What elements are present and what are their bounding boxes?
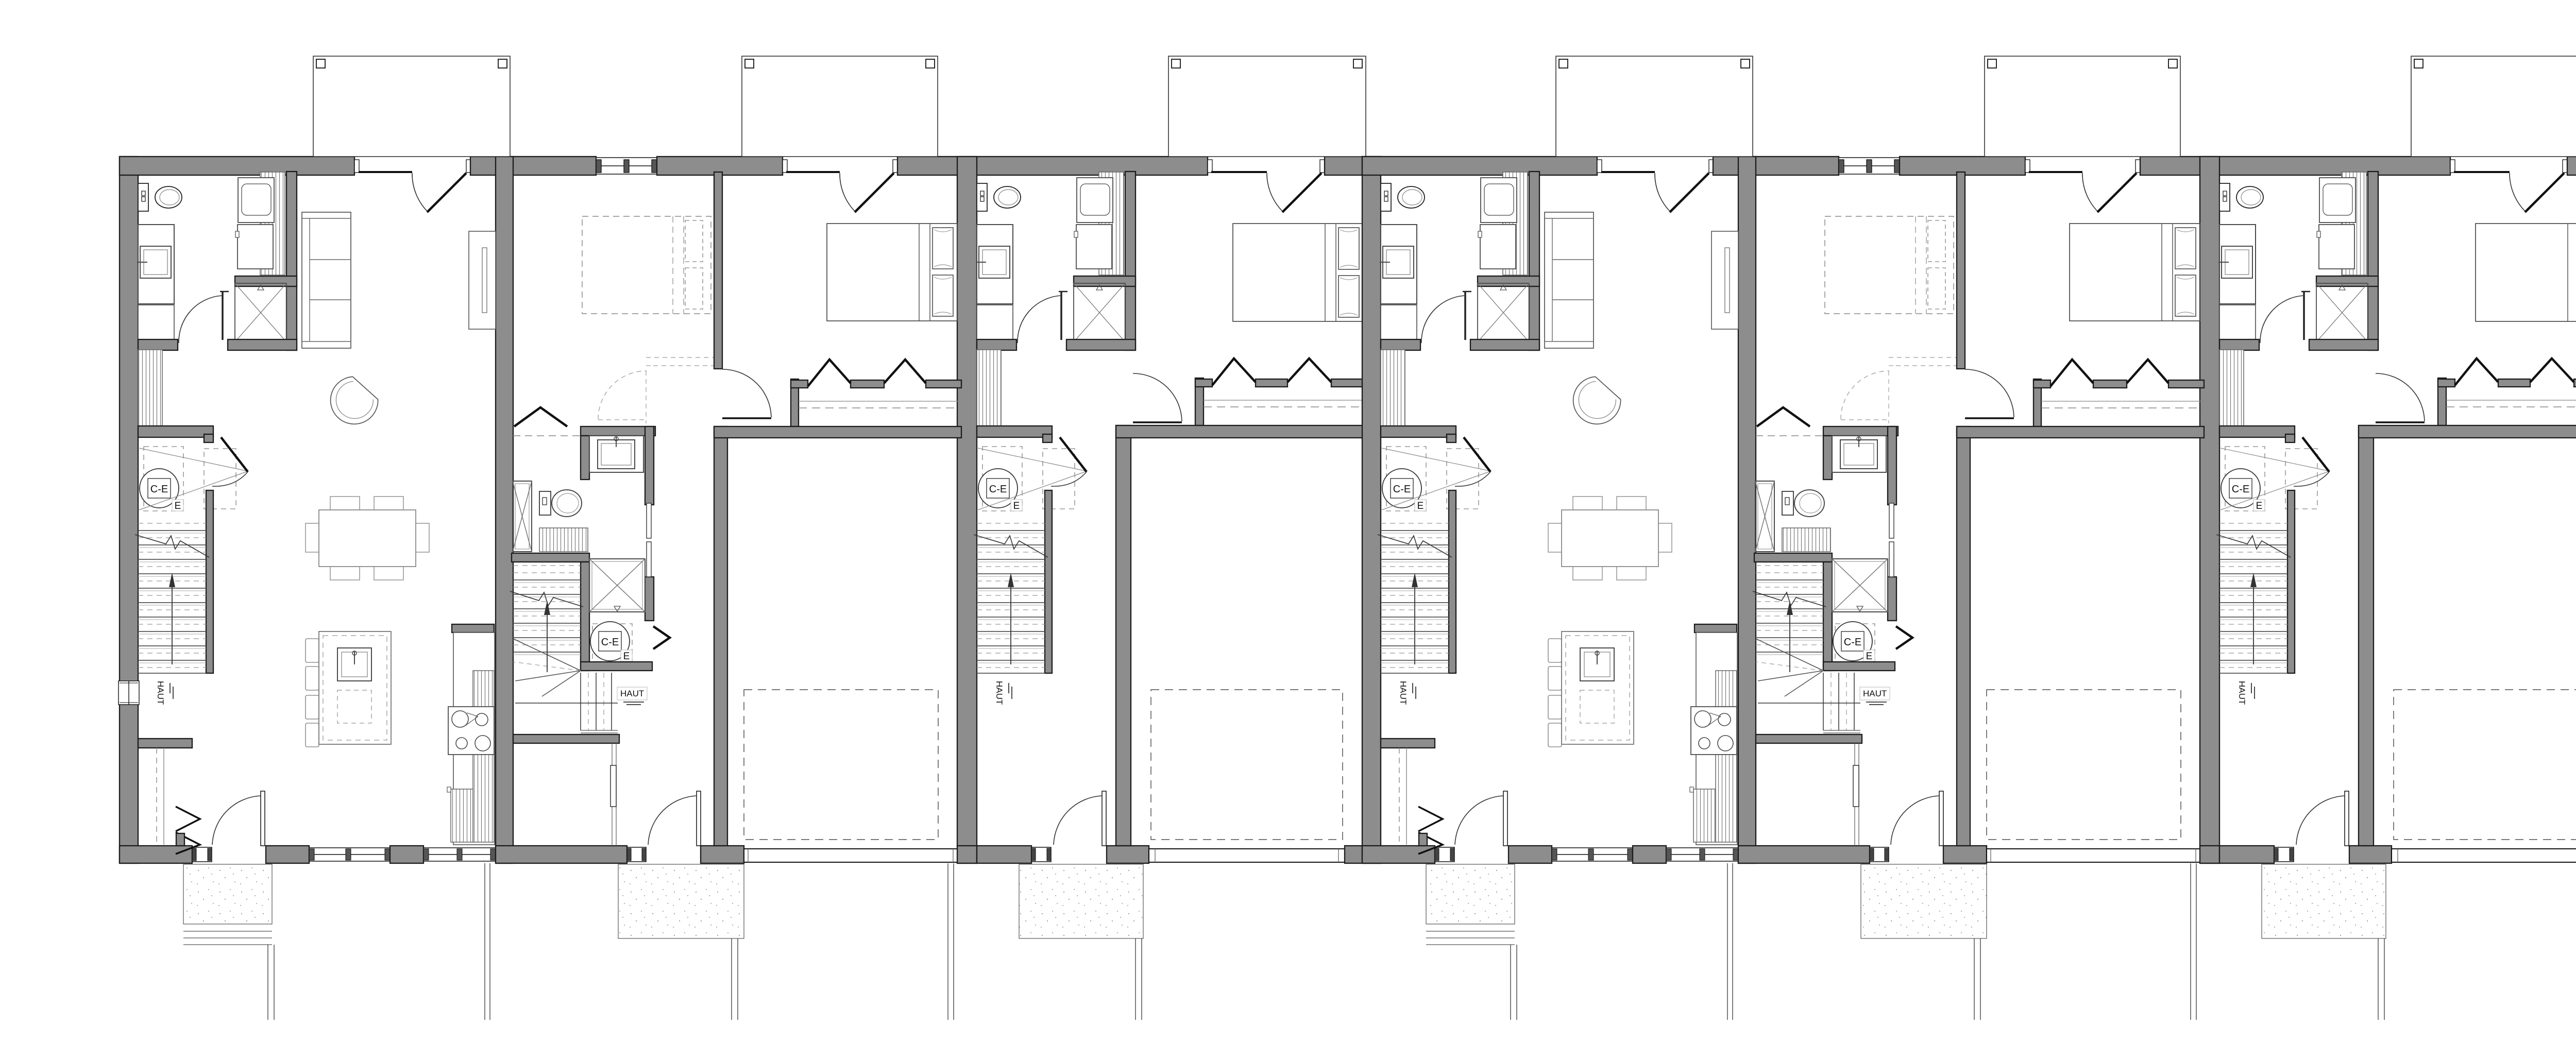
svg-text:HAUT: HAUT (1863, 689, 1887, 698)
svg-text:C-E: C-E (150, 484, 168, 495)
svg-text:E: E (1013, 501, 1020, 511)
svg-text:HAUT: HAUT (994, 681, 1004, 705)
svg-text:C-E: C-E (2232, 484, 2249, 495)
svg-text:HAUT: HAUT (1398, 681, 1408, 705)
svg-text:E: E (1417, 501, 1424, 511)
svg-text:E: E (623, 651, 630, 662)
svg-text:E: E (175, 501, 181, 511)
svg-text:C-E: C-E (989, 484, 1007, 495)
svg-text:E: E (1866, 651, 1873, 662)
svg-text:HAUT: HAUT (2237, 681, 2247, 705)
svg-text:HAUT: HAUT (620, 689, 644, 698)
svg-text:C-E: C-E (601, 637, 619, 648)
svg-text:C-E: C-E (1844, 637, 1861, 648)
svg-text:HAUT: HAUT (156, 681, 165, 705)
svg-text:E: E (2256, 501, 2263, 511)
svg-text:C-E: C-E (1393, 484, 1411, 495)
